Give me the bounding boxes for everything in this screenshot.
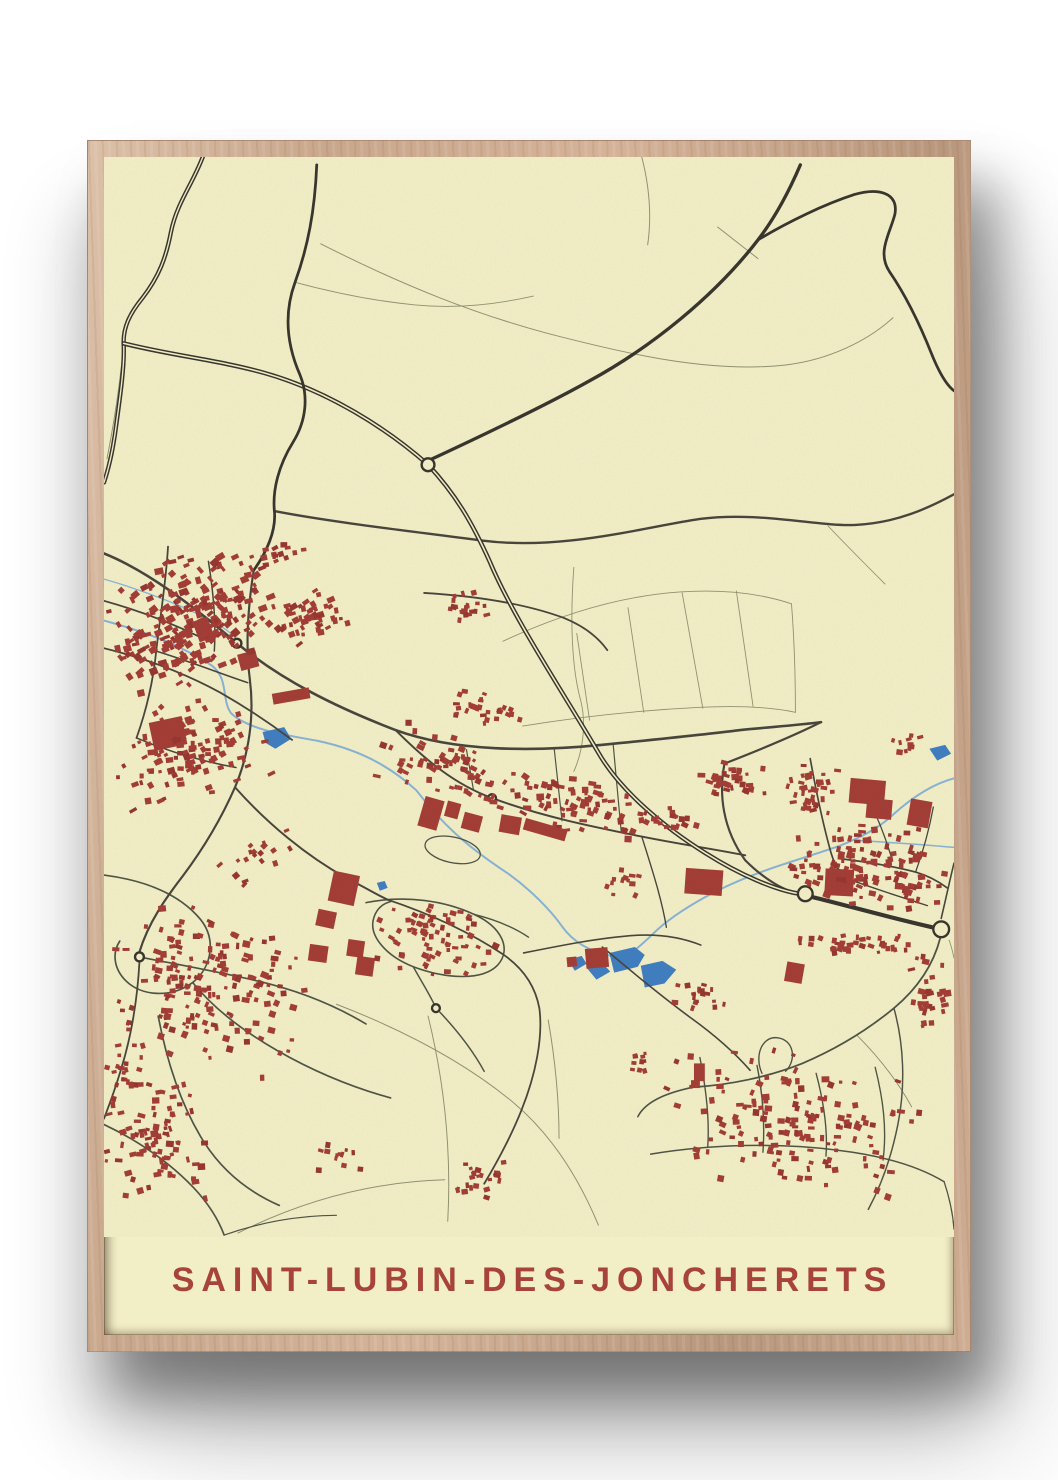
poster-frame: SAINT-LUBIN-DES-JONCHERETS <box>87 140 971 1352</box>
poster-title: SAINT-LUBIN-DES-JONCHERETS <box>165 1261 893 1300</box>
map-poster: SAINT-LUBIN-DES-JONCHERETS <box>104 157 954 1335</box>
title-band: SAINT-LUBIN-DES-JONCHERETS <box>104 1237 954 1335</box>
city-map <box>104 157 954 1237</box>
map-area <box>104 157 954 1237</box>
paper-grain-texture <box>104 157 954 1237</box>
